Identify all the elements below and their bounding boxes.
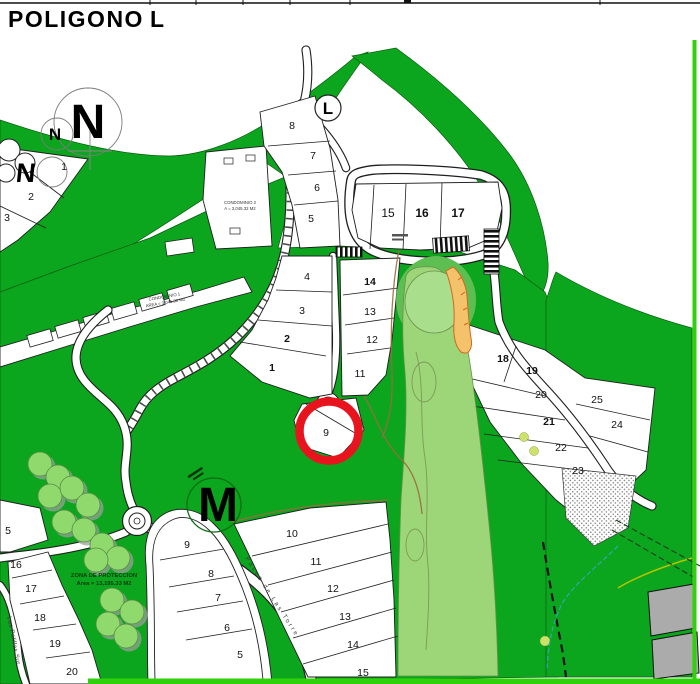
lot-number: 18 <box>497 353 509 365</box>
lot-number: 16 <box>415 206 429 220</box>
roundabout-inner <box>129 513 145 529</box>
roundabout <box>123 507 152 536</box>
lot-number: 19 <box>49 638 61 650</box>
building-footprint <box>246 155 255 161</box>
border-tick <box>404 0 411 4</box>
lot-number: 6 <box>314 182 320 194</box>
lot-number: 5 <box>237 649 243 661</box>
lot-number: 13 <box>364 306 376 318</box>
lot-number: 4 <box>304 271 310 283</box>
compass-n-label: N <box>71 96 106 149</box>
lot-number: 1 <box>269 362 275 374</box>
lot-number: 2 <box>284 333 290 345</box>
lot-number: 8 <box>289 120 295 132</box>
lot-number: 5 <box>5 525 11 537</box>
lot-number: 11 <box>355 368 366 380</box>
zona-proteccion-area: Area = 13,195.33 M2 <box>77 581 132 587</box>
lot-number: 20 <box>66 666 78 678</box>
compass-n-small-label: N <box>49 125 61 144</box>
lot-number: 16 <box>10 559 22 571</box>
lot-number: 14 <box>347 639 359 651</box>
lot-number: 24 <box>611 419 623 431</box>
lot-number: 17 <box>451 206 465 220</box>
zona-proteccion-label: ZONA DE PROTECCION <box>71 573 137 579</box>
micro-label <box>392 234 408 237</box>
lot-number: 11 <box>311 556 322 568</box>
condominio-2-area: A = 3,045.32 M2 <box>224 206 256 211</box>
gray-building <box>648 584 696 636</box>
building-footprint <box>230 228 240 234</box>
crosswalk <box>336 247 362 257</box>
crosswalk <box>433 236 470 253</box>
lot-number: 12 <box>366 334 378 346</box>
lot-number: 18 <box>34 612 46 624</box>
lot-number: 12 <box>327 583 339 595</box>
shrub <box>540 636 550 646</box>
lot-number: 22 <box>555 442 567 454</box>
gray-building <box>652 632 699 679</box>
bottom-border-band <box>88 679 700 684</box>
lot-number: 9 <box>184 539 190 551</box>
building-footprint <box>224 158 233 164</box>
section-n-lot-number: 1 <box>61 161 67 173</box>
lot-number: 2 <box>28 191 34 203</box>
lot-number: 5 <box>308 213 314 225</box>
lot-number: 13 <box>339 611 351 623</box>
page-title-word1: POLIGONO <box>8 6 144 32</box>
lot-number: 17 <box>25 583 37 595</box>
shrub <box>530 447 539 456</box>
lot-number: 20 <box>535 389 547 401</box>
plat-map: N N L M N 1 POLIGONO L 8 7 6 5 15 16 17 … <box>0 0 700 684</box>
condominio-2-label: CONDOMINIO 2 <box>224 200 257 205</box>
lot-number: 8 <box>208 568 214 580</box>
page-title-word2: L <box>150 6 166 32</box>
lot-number: 14 <box>364 276 376 288</box>
crosswalk <box>484 229 499 274</box>
lot-number: 7 <box>310 150 316 162</box>
lot-number: 3 <box>299 305 305 317</box>
section-l-label: L <box>323 99 333 118</box>
lot-number: 3 <box>4 212 10 224</box>
lot-number: 15 <box>357 667 369 679</box>
lot-number: 25 <box>591 394 603 406</box>
lot-number: 15 <box>381 206 395 220</box>
micro-label <box>392 239 403 241</box>
plat-map-page: N N L M N 1 POLIGONO L 8 7 6 5 15 16 17 … <box>0 0 700 684</box>
right-border-band <box>693 40 697 684</box>
lot-number: 10 <box>286 528 298 540</box>
lot-number-circled: 9 <box>323 427 329 439</box>
lot-number: 7 <box>215 592 221 604</box>
tree-circle <box>0 164 15 182</box>
lot-number: 6 <box>224 622 230 634</box>
section-m-label: M <box>198 479 238 532</box>
section-n-label: N <box>14 157 37 188</box>
lot-number: 21 <box>543 416 555 428</box>
lot-number: 19 <box>526 365 538 377</box>
shrub <box>520 433 529 442</box>
lot-number: 23 <box>572 465 584 477</box>
